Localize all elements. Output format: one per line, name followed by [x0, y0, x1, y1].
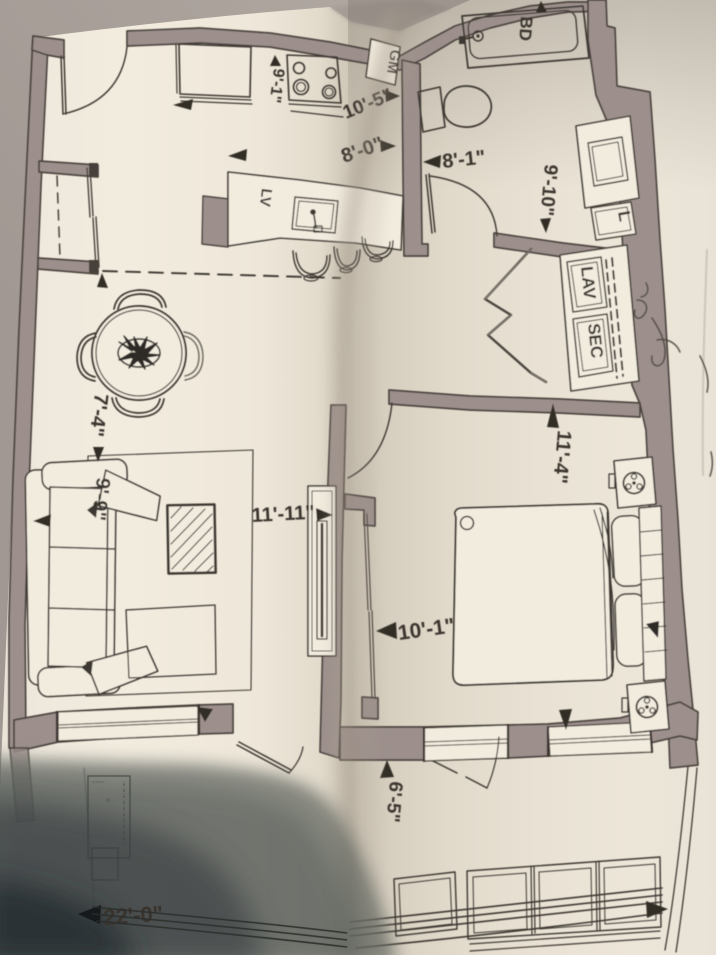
- svg-text:11'-4": 11'-4": [548, 430, 575, 485]
- svg-text:LAV: LAV: [577, 265, 599, 300]
- svg-text:SEC: SEC: [584, 322, 607, 359]
- svg-text:8'-1": 8'-1": [441, 147, 486, 173]
- svg-text:LV: LV: [256, 188, 275, 208]
- svg-text:11'-11": 11'-11": [251, 502, 315, 527]
- svg-text:9'-10": 9'-10": [536, 164, 561, 217]
- svg-text:BD: BD: [515, 16, 536, 42]
- svg-text:6'-5": 6'-5": [381, 781, 405, 824]
